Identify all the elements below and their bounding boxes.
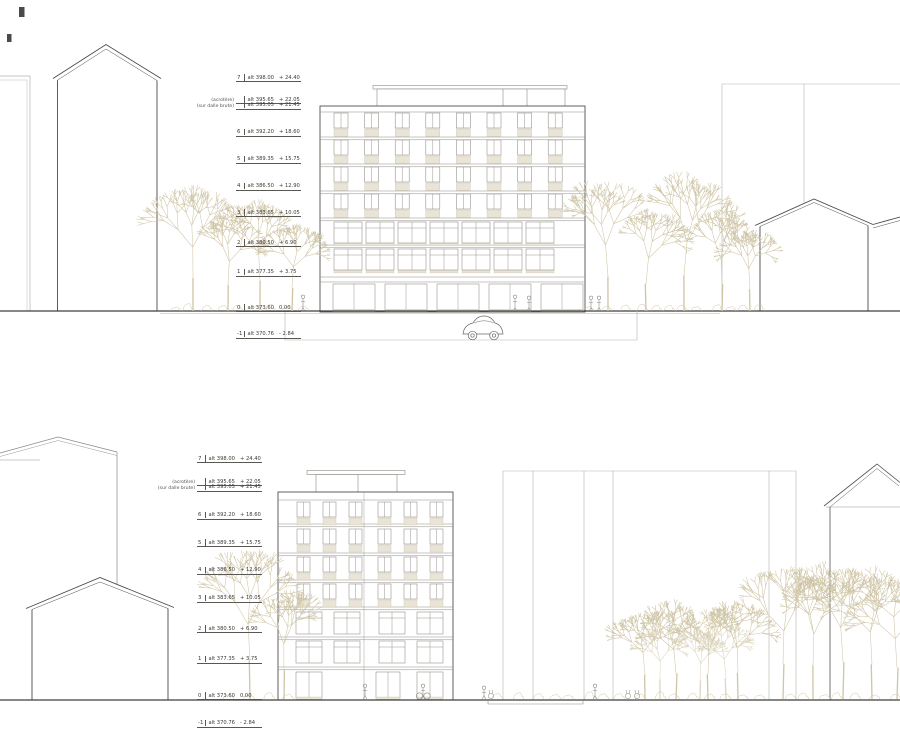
spandrel-panel — [494, 271, 522, 273]
elevation-top — [0, 7, 900, 340]
spandrel-panel — [456, 210, 470, 217]
building-gabled-right-top — [755, 199, 900, 311]
spandrel-panel — [430, 600, 443, 607]
ground-line-bottom — [0, 700, 900, 704]
spandrel-panel — [494, 244, 522, 246]
spandrel-panel — [548, 183, 562, 190]
spandrel-panel — [395, 156, 409, 163]
spandrel-panel — [395, 129, 409, 136]
spandrel-panel — [462, 271, 490, 273]
spandrel-panel — [487, 210, 501, 217]
building-gabled-left-bottom — [26, 578, 174, 701]
tree-trunk — [722, 284, 723, 311]
spandrel-panel — [334, 271, 362, 273]
tree-branches — [619, 210, 695, 284]
person-head — [589, 296, 592, 299]
car-icon — [463, 316, 503, 340]
spandrel-panel — [349, 518, 362, 525]
building-left-top — [0, 76, 30, 311]
spandrel-panel — [334, 210, 348, 217]
spandrel-panel — [398, 271, 426, 273]
spandrel-panel — [365, 210, 379, 217]
spandrel-panel — [378, 573, 391, 580]
person-head — [301, 295, 304, 298]
spandrel-panel — [334, 156, 348, 163]
building-gabled-left-top — [53, 45, 161, 312]
spandrel-panel — [430, 545, 443, 552]
basement-outline-top — [285, 311, 637, 340]
spandrel-panel — [487, 156, 501, 163]
spandrel-panel — [297, 518, 310, 525]
spandrel-panel — [349, 545, 362, 552]
spandrel-panel — [518, 129, 532, 136]
spandrel-panel — [378, 518, 391, 525]
spandrel-panel — [323, 545, 336, 552]
spandrel-panel — [426, 129, 440, 136]
person-body — [597, 300, 601, 311]
chimney-icon — [7, 7, 25, 42]
attique-bottom — [307, 471, 405, 493]
tree-branches — [687, 204, 758, 284]
spandrel-panel — [518, 210, 532, 217]
tree-trunk — [292, 288, 293, 311]
person-figure — [482, 686, 486, 699]
spandrel-panel — [365, 129, 379, 136]
person-figure — [597, 296, 601, 311]
spandrel-panel — [426, 183, 440, 190]
tree-trunk — [750, 289, 751, 311]
elevation-bottom — [0, 437, 900, 704]
spandrel-panel — [395, 210, 409, 217]
spandrel-panel — [378, 545, 391, 552]
person-body — [482, 690, 486, 699]
drawing-canvas — [0, 0, 900, 745]
spandrel-panel — [395, 183, 409, 190]
spandrel-panel — [334, 129, 348, 136]
spandrel-panel — [378, 600, 391, 607]
spandrel-panel — [365, 156, 379, 163]
person-body — [301, 299, 305, 311]
spandrel-panel — [430, 518, 443, 525]
shrub — [583, 304, 765, 311]
spandrel-panel — [404, 573, 417, 580]
spandrel-panel — [430, 271, 458, 273]
spandrel-panel — [487, 129, 501, 136]
spandrel-panel — [487, 183, 501, 190]
spandrel-panel — [456, 129, 470, 136]
spandrel-panel — [366, 271, 394, 273]
spandrel-panel — [297, 545, 310, 552]
spandrel-panel — [296, 697, 322, 699]
spandrel-panel — [404, 518, 417, 525]
spandrel-panel — [349, 600, 362, 607]
person-figure — [301, 295, 305, 311]
spandrel-panel — [404, 600, 417, 607]
spandrel-panel — [456, 156, 470, 163]
spandrel-panel — [430, 244, 458, 246]
tree-trunk — [700, 681, 701, 700]
spandrel-panel — [334, 183, 348, 190]
spandrel-panel — [426, 210, 440, 217]
person-body — [589, 300, 593, 311]
tree-trunk — [783, 664, 784, 699]
person-head — [597, 296, 600, 299]
spandrel-panel — [323, 518, 336, 525]
tree-trunk — [737, 673, 738, 699]
spandrel-panel — [398, 244, 426, 246]
main-building-bottom — [278, 471, 453, 701]
spandrel-panel — [456, 183, 470, 190]
spandrel-panel — [323, 600, 336, 607]
rabbit-body — [488, 693, 493, 698]
building-right-bottom — [503, 471, 796, 700]
spandrel-panel — [518, 183, 532, 190]
spandrel-panel — [548, 210, 562, 217]
tree-trunk — [871, 664, 872, 699]
spandrel-panel — [297, 573, 310, 580]
spandrel-panel — [526, 244, 554, 246]
spandrel-panel — [426, 156, 440, 163]
elevation-drawing: 7alt 398.00+ 24.40(acrotère)alt 395.65+ … — [0, 0, 900, 745]
spandrel-panel — [365, 183, 379, 190]
spandrel-panel — [462, 244, 490, 246]
spandrel-panel — [430, 573, 443, 580]
tree-trunk — [725, 678, 726, 699]
spandrel-panel — [518, 156, 532, 163]
main-building-top — [320, 86, 585, 313]
spandrel-panel — [376, 697, 400, 699]
person-head — [482, 686, 485, 689]
attique-top — [373, 86, 567, 107]
spandrel-panel — [548, 156, 562, 163]
spandrel-panel — [349, 573, 362, 580]
spandrel-panel — [323, 573, 336, 580]
tree-trunk — [843, 662, 844, 699]
spandrel-panel — [404, 545, 417, 552]
spandrel-panel — [548, 129, 562, 136]
tree-trunk — [249, 660, 250, 699]
tree-trunk — [645, 284, 646, 311]
tree-branches — [137, 185, 237, 278]
spandrel-panel — [366, 244, 394, 246]
shrub — [170, 303, 308, 311]
tree-trunk — [707, 674, 708, 699]
spandrel-panel — [334, 244, 362, 246]
spandrel-panel — [526, 271, 554, 273]
